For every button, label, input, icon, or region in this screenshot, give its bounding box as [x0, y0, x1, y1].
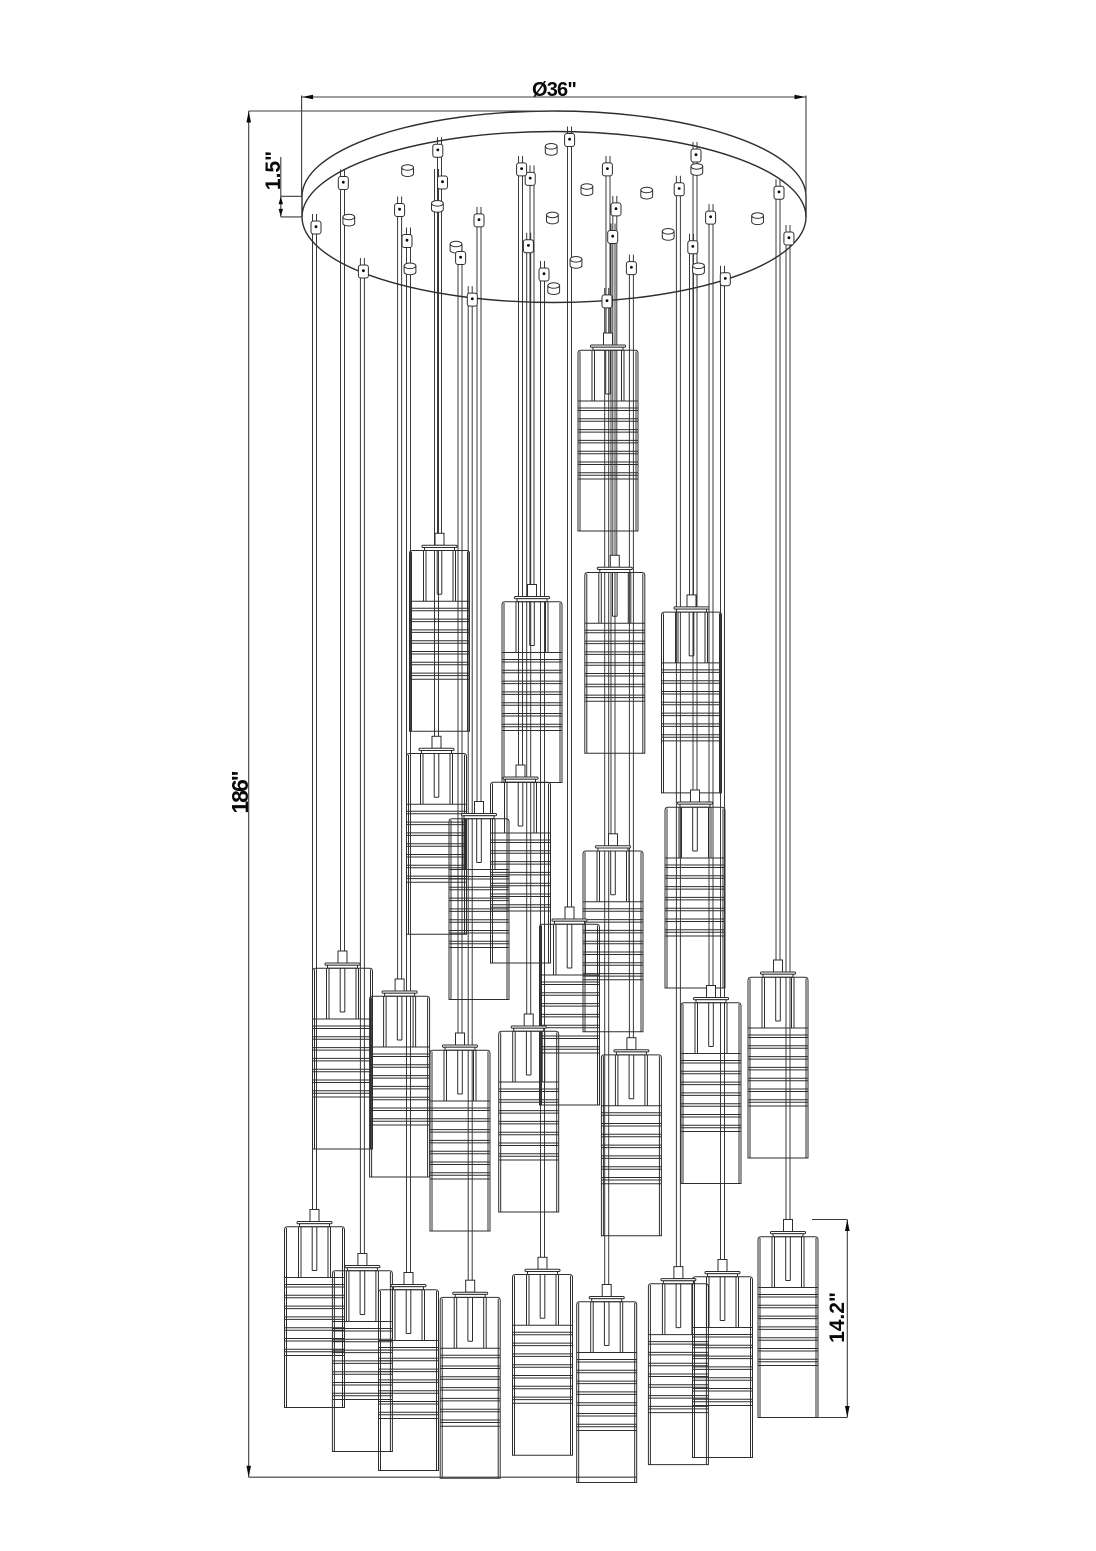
svg-text:14.2": 14.2" — [826, 1292, 849, 1343]
svg-text:1.5": 1.5" — [262, 151, 285, 190]
svg-text:186": 186" — [227, 771, 253, 813]
svg-text:Ø36": Ø36" — [532, 79, 576, 101]
